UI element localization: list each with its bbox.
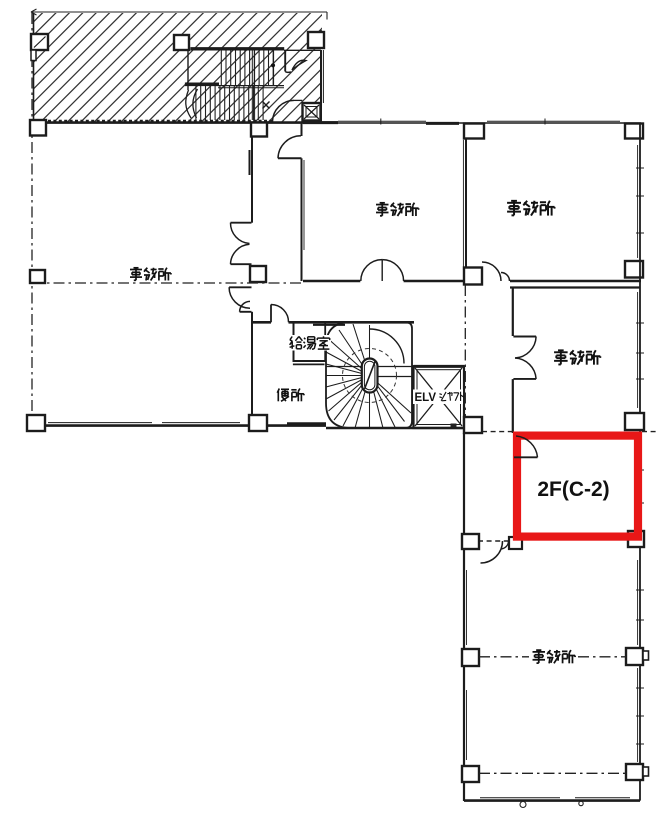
svg-text:2F(C-2): 2F(C-2) [537, 478, 609, 501]
svg-text:ELV: ELV [415, 392, 437, 404]
